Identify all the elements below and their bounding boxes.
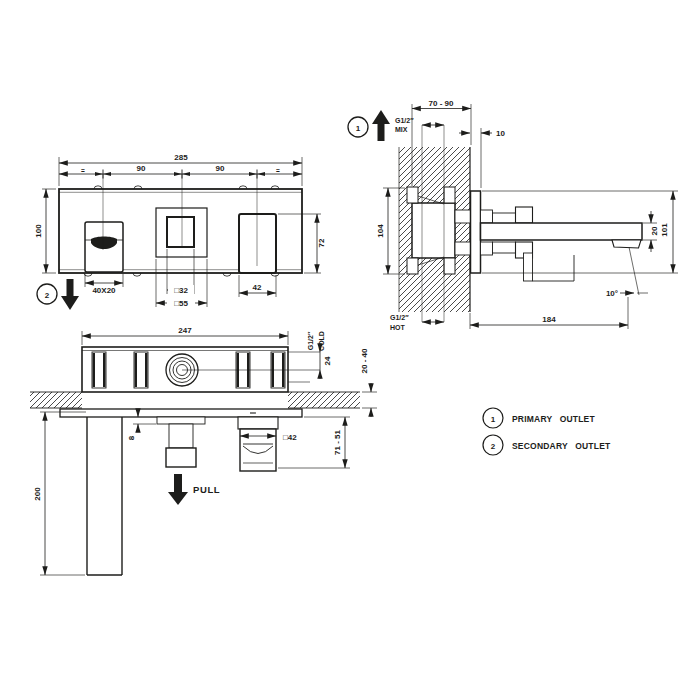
dim-body-height-label: 104 — [376, 224, 385, 238]
pull-indicator: PULL — [168, 474, 220, 505]
dim-plate-height: 100 — [34, 189, 56, 273]
technical-drawing-page: 285 90 90 = = 100 72 — [0, 0, 700, 700]
marker-2-number: 2 — [45, 291, 50, 300]
hot-label: HOT — [390, 324, 406, 331]
dim-wall-thickness: 20 - 40 — [360, 348, 377, 417]
dim-step-depth-label: 8 — [127, 435, 136, 440]
dim-overall-width-label: 285 — [174, 153, 188, 162]
diverter-rod-side — [524, 253, 533, 281]
view-marker-1: 1 — [348, 110, 390, 141]
secondary-outlet-plan — [238, 417, 278, 471]
hot-thread-label: G1/2″ — [390, 314, 409, 321]
legend-item-primary: 1 PRIMARY OUTLET — [483, 408, 595, 428]
dim-wall-thickness-label: 20 - 40 — [360, 348, 369, 373]
legend-marker-1-number: 1 — [491, 415, 496, 424]
mix-thread-label: G1/2″ — [395, 117, 414, 124]
mix-connection-label: G1/2″ MIX — [395, 117, 444, 133]
mix-label: MIX — [395, 126, 408, 133]
dim-embed-depth-label: 70 - 90 — [429, 99, 454, 108]
marker-1-number: 1 — [356, 124, 361, 133]
dim-overall-height-label: 101 — [660, 223, 669, 237]
pull-label: PULL — [193, 484, 220, 495]
dim-spacing: 90 90 = = — [59, 164, 302, 179]
equal-mark-right: = — [276, 167, 280, 174]
dim-spout-thickness-label: 20 — [650, 226, 659, 235]
in-wall-body — [412, 203, 455, 258]
wall-band-left — [30, 392, 82, 408]
cold-connection-label: G1/2″ COLD — [307, 331, 325, 351]
side-view: 70 - 90 G1/2″ MIX 10 104 20 — [348, 99, 678, 332]
dim-left-spacing-label: 90 — [137, 164, 146, 173]
dim-outlet-slot-label: 40X20 — [92, 286, 116, 295]
dim-escutcheon-size-label: □55 — [174, 299, 188, 308]
mixer-handle-front — [239, 214, 276, 273]
view-marker-2: 2 — [37, 279, 79, 310]
up-arrow-icon — [372, 110, 390, 124]
dim-overall-width: 285 — [59, 153, 302, 186]
dim-handle-height-label: 72 — [317, 238, 326, 247]
primary-outlet-spout — [87, 417, 122, 575]
cold-thread-label: G1/2″ — [307, 331, 314, 350]
dim-right-spacing-label: 90 — [216, 164, 225, 173]
dim-body-width: 247 — [82, 326, 288, 345]
dim-spout-angle-label: 10° — [606, 289, 618, 298]
dim-projection-label: 71 - 51 — [333, 429, 342, 454]
dim-spout-reach-label: 184 — [542, 315, 556, 324]
dim-flange-depth-label: 10 — [496, 129, 505, 138]
plate-plan — [60, 409, 302, 417]
aerator-tip — [612, 240, 641, 248]
spout-side — [481, 223, 643, 240]
dim-cold-offset-label: 24 — [323, 356, 332, 365]
dim-handspray-size-label: □42 — [283, 433, 297, 442]
down-arrow-icon — [67, 279, 74, 296]
legend: 1 PRIMARY OUTLET 2 SECONDARY OUTLET — [483, 408, 611, 455]
cold-label: COLD — [318, 331, 325, 351]
dim-spout-length-label: 200 — [33, 487, 42, 501]
dim-projection: 71 - 51 — [278, 417, 350, 468]
legend-primary-label: PRIMARY OUTLET — [512, 414, 595, 424]
dim-outlet-slot: 40X20 — [85, 274, 123, 295]
equal-mark-left: = — [81, 167, 85, 174]
wall-flange — [471, 191, 481, 273]
dim-spout-reach: 184 — [470, 297, 628, 329]
dim-knob-size-label: □32 — [174, 286, 188, 295]
dim-handle-width: 42 — [239, 275, 276, 297]
front-view: 285 90 90 = = 100 72 — [34, 153, 326, 310]
dim-handle-width-label: 42 — [253, 283, 262, 292]
legend-secondary-label: SECONDARY OUTLET — [512, 441, 611, 451]
legend-marker-2-number: 2 — [491, 442, 496, 451]
pull-arrow-icon — [174, 474, 182, 492]
wall-band-right — [288, 392, 360, 408]
pull-diverter — [157, 417, 205, 467]
dim-plate-height-label: 100 — [34, 224, 43, 238]
dim-spout-angle: 10° — [606, 247, 648, 298]
plan-view: PULL 247 G1/2″ COLD 24 20 - 40 — [30, 326, 377, 575]
dim-spout-length: 200 — [33, 412, 86, 575]
dim-body-width-label: 247 — [178, 326, 192, 335]
pull-knob — [166, 448, 196, 467]
hot-connection-label: G1/2″ HOT — [390, 314, 444, 331]
legend-item-secondary: 2 SECONDARY OUTLET — [483, 435, 611, 455]
dim-spout-thickness: 20 — [643, 211, 659, 252]
diverter-knob-front — [167, 217, 194, 247]
faucet-technical-drawing: 285 90 90 = = 100 72 — [0, 0, 700, 700]
